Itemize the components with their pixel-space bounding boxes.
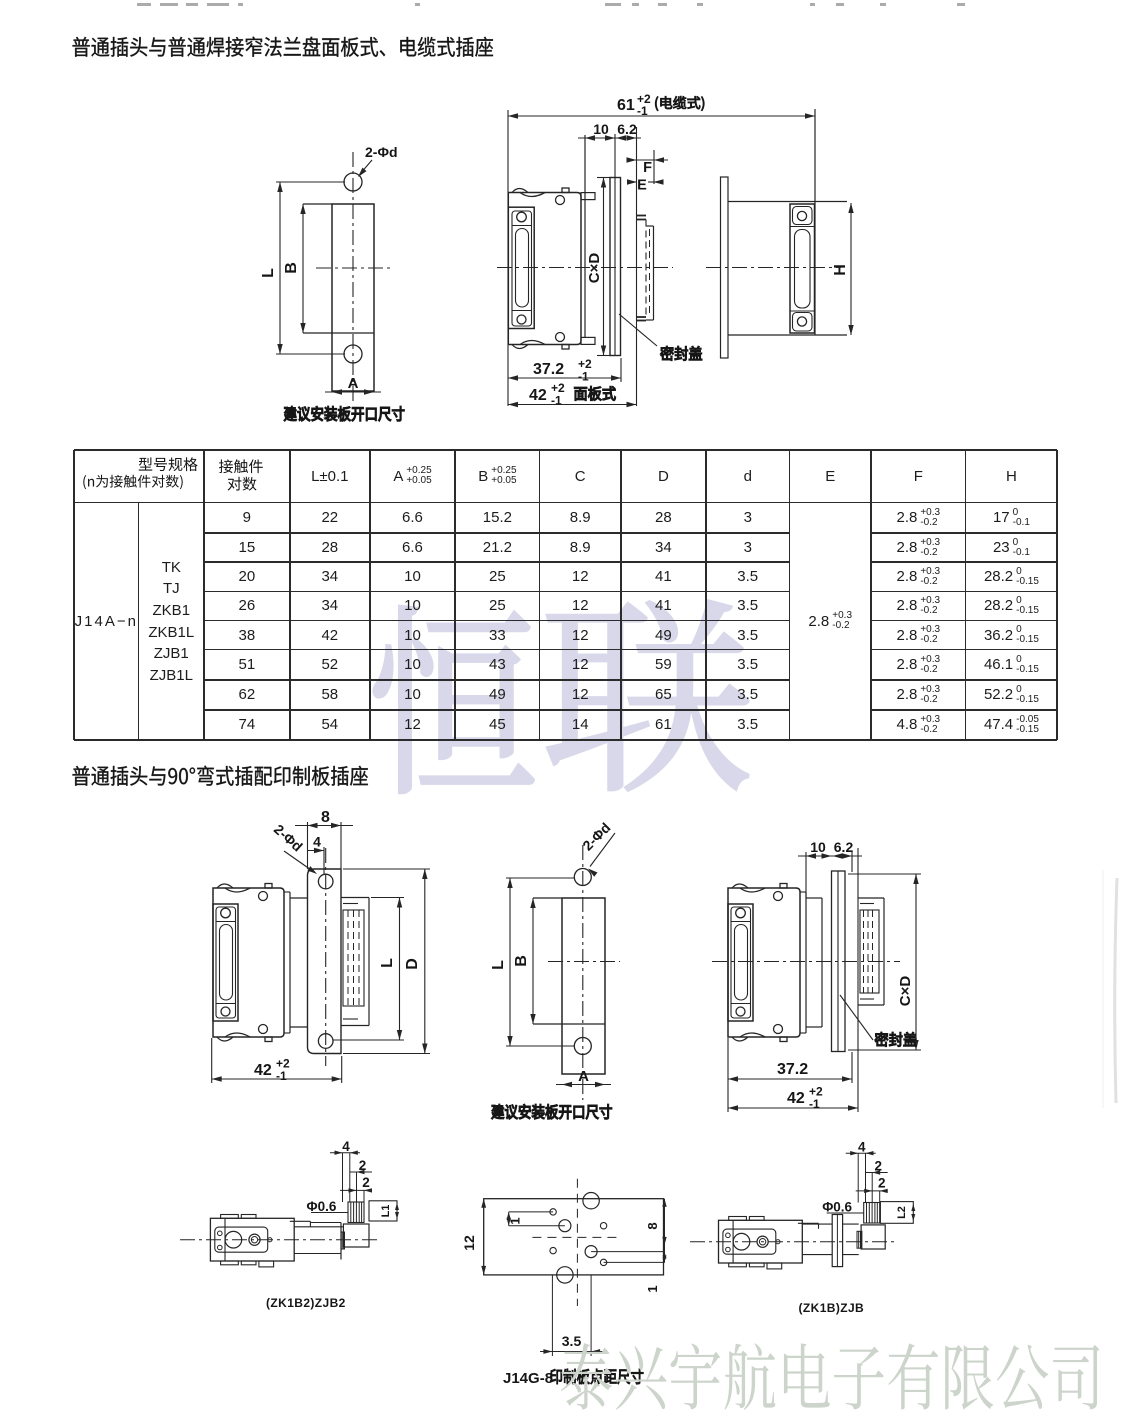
- svg-text:B: B: [513, 955, 530, 967]
- svg-text:4: 4: [342, 1139, 350, 1154]
- svg-text:6.2: 6.2: [834, 839, 854, 855]
- svg-text:37.2: 37.2: [777, 1061, 808, 1078]
- svg-text:4: 4: [313, 834, 321, 850]
- svg-text:2-Φd: 2-Φd: [579, 819, 613, 853]
- svg-text:4: 4: [858, 1140, 866, 1155]
- svg-text:-1: -1: [578, 370, 589, 384]
- svg-text:42: 42: [787, 1090, 805, 1107]
- svg-text:H: H: [832, 264, 849, 276]
- svg-text:37.2: 37.2: [533, 361, 564, 378]
- svg-text:1: 1: [645, 1285, 660, 1292]
- svg-text:-1: -1: [637, 104, 648, 118]
- svg-text:1: 1: [508, 1217, 523, 1224]
- svg-text:42: 42: [254, 1062, 272, 1079]
- svg-text:2-Φd: 2-Φd: [365, 144, 398, 160]
- svg-text:D: D: [404, 958, 421, 970]
- svg-text:3.5: 3.5: [562, 1333, 582, 1349]
- svg-text:10: 10: [593, 121, 609, 137]
- svg-text:8: 8: [645, 1222, 660, 1229]
- svg-text:J14G-8: J14G-8: [503, 1370, 553, 1387]
- svg-text:L1: L1: [380, 1205, 392, 1218]
- svg-text:-1: -1: [276, 1069, 287, 1083]
- svg-text:61: 61: [617, 97, 635, 114]
- svg-text:2: 2: [362, 1175, 370, 1190]
- svg-text:B: B: [283, 262, 300, 274]
- svg-text:L: L: [490, 960, 507, 970]
- svg-text:L2: L2: [896, 1206, 908, 1219]
- svg-text:42: 42: [529, 387, 547, 404]
- svg-text:C×D: C×D: [897, 976, 914, 1007]
- svg-text:F: F: [643, 160, 652, 176]
- svg-text:Φ0.6: Φ0.6: [822, 1200, 852, 1215]
- svg-text:Φ0.6: Φ0.6: [307, 1199, 337, 1214]
- svg-text:6.2: 6.2: [617, 121, 637, 137]
- svg-text:L: L: [260, 268, 277, 278]
- svg-text:(ZK1B)ZJB: (ZK1B)ZJB: [799, 1301, 865, 1315]
- svg-text:A: A: [578, 1068, 589, 1085]
- svg-text:A: A: [348, 375, 359, 392]
- svg-text:-1: -1: [809, 1097, 820, 1111]
- svg-text:E: E: [637, 178, 647, 194]
- svg-text:-1: -1: [551, 394, 562, 408]
- svg-text:2: 2: [878, 1176, 886, 1191]
- svg-text:L: L: [379, 958, 396, 968]
- svg-text:12: 12: [461, 1235, 477, 1251]
- svg-text:(ZK1B2)ZJB2: (ZK1B2)ZJB2: [266, 1296, 346, 1310]
- svg-text:8: 8: [321, 809, 330, 826]
- svg-text:10: 10: [810, 839, 826, 855]
